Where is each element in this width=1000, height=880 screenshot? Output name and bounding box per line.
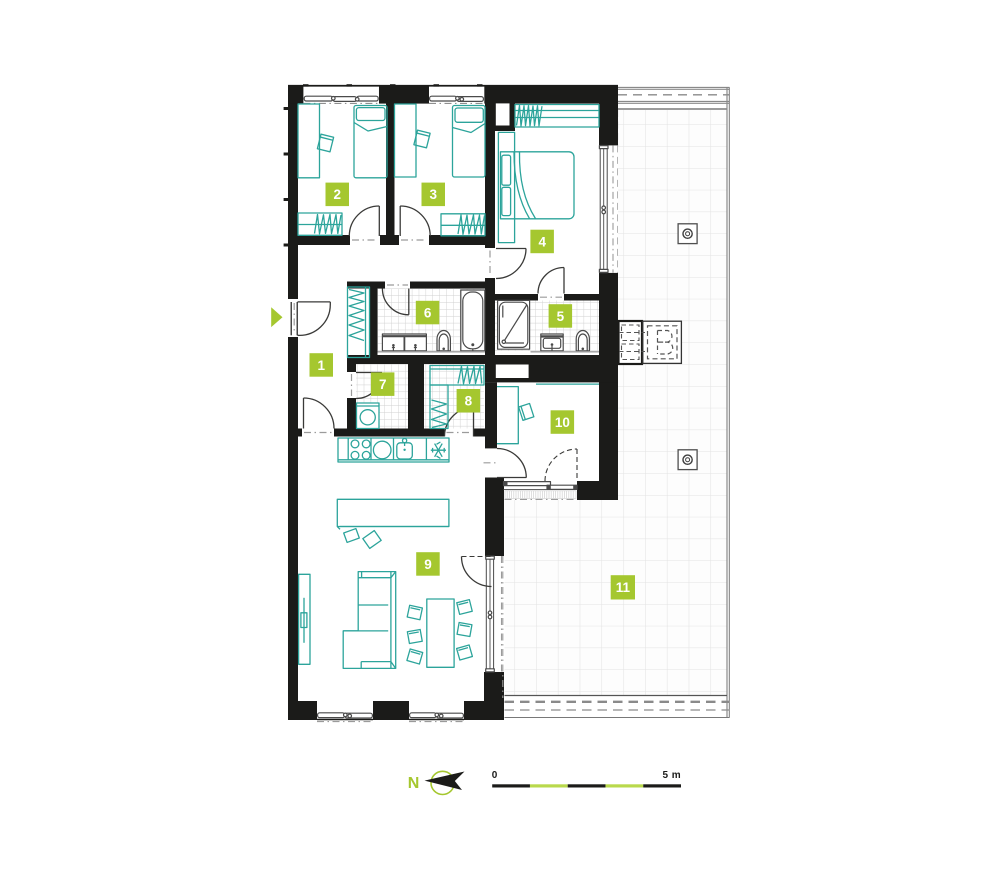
svg-text:N: N: [408, 775, 420, 792]
svg-text:4: 4: [538, 234, 546, 249]
svg-text:8: 8: [465, 394, 473, 409]
svg-text:7: 7: [379, 377, 387, 392]
svg-text:11: 11: [616, 580, 631, 595]
svg-text:5: 5: [557, 309, 565, 324]
svg-text:3: 3: [430, 187, 438, 202]
svg-text:9: 9: [424, 557, 432, 572]
svg-text:0: 0: [492, 770, 498, 781]
svg-text:5 m: 5 m: [662, 770, 681, 781]
svg-text:2: 2: [334, 187, 342, 202]
svg-text:10: 10: [555, 415, 570, 430]
svg-text:1: 1: [318, 358, 326, 373]
svg-text:6: 6: [424, 305, 432, 320]
